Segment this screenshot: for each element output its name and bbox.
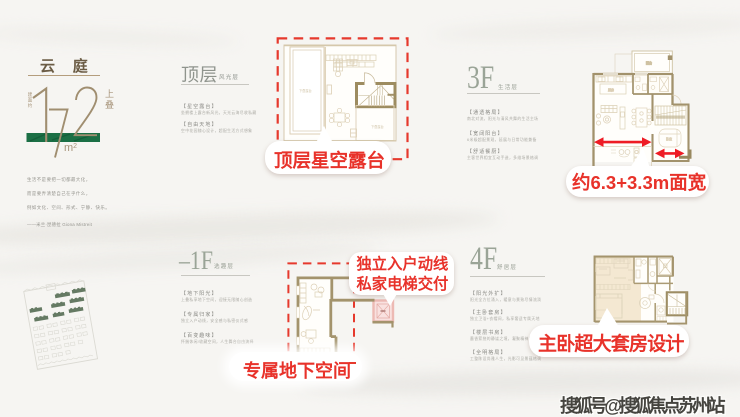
svg-text:下叠露台: 下叠露台 — [371, 124, 384, 129]
svg-text:厨房: 厨房 — [608, 87, 614, 92]
svg-text:阳台: 阳台 — [646, 60, 652, 65]
svg-text:卧室: 卧室 — [666, 136, 672, 141]
svg-text:下叠露台: 下叠露台 — [299, 88, 312, 93]
